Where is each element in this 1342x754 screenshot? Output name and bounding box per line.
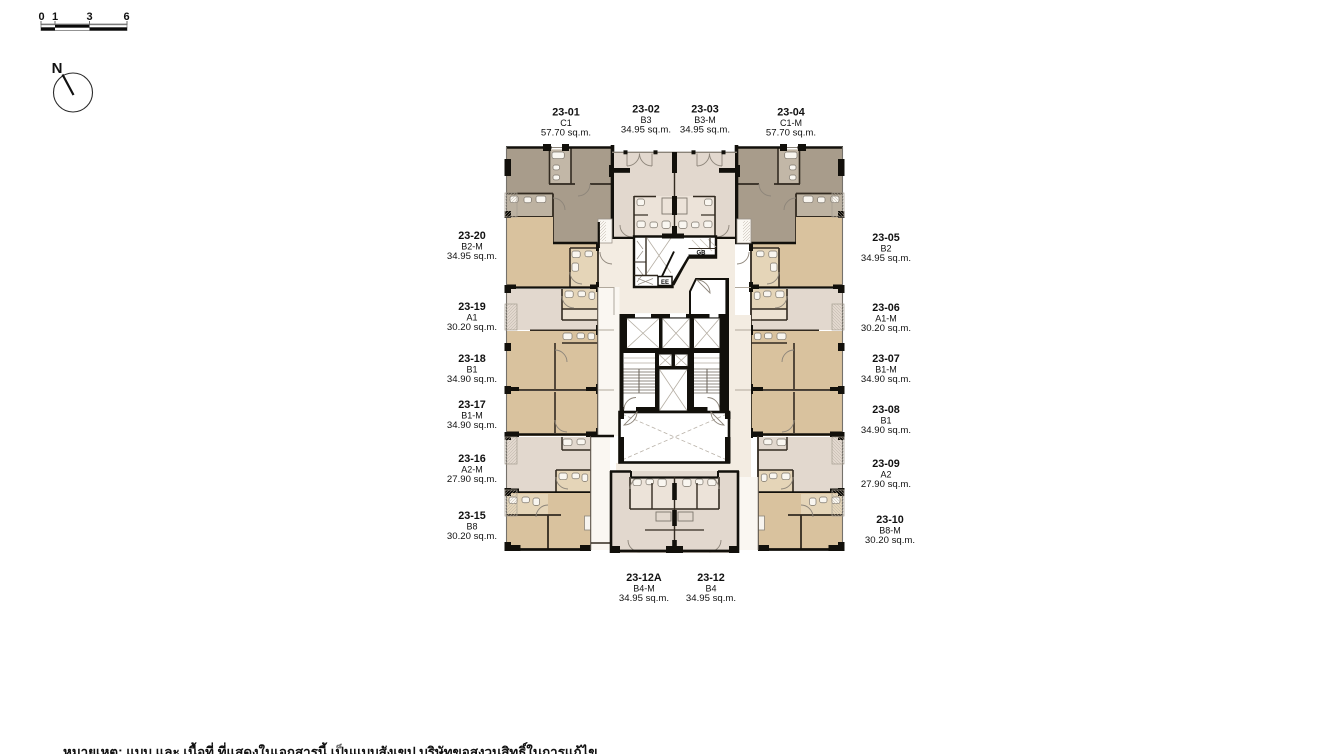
svg-text:C1-M: C1-M bbox=[780, 118, 802, 128]
svg-text:GB: GB bbox=[697, 251, 707, 257]
svg-text:27.90 sq.m.: 27.90 sq.m. bbox=[447, 474, 497, 485]
svg-text:B1-M: B1-M bbox=[875, 364, 897, 374]
svg-text:34.95 sq.m.: 34.95 sq.m. bbox=[621, 125, 671, 136]
svg-text:23-07: 23-07 bbox=[872, 353, 900, 365]
svg-text:23-10: 23-10 bbox=[876, 514, 904, 526]
svg-text:EE: EE bbox=[661, 280, 669, 286]
svg-text:34.95 sq.m.: 34.95 sq.m. bbox=[619, 593, 669, 604]
svg-text:27.90 sq.m.: 27.90 sq.m. bbox=[861, 479, 911, 490]
svg-text:B3: B3 bbox=[640, 115, 651, 125]
svg-text:23-03: 23-03 bbox=[691, 104, 719, 116]
svg-text:C1: C1 bbox=[560, 118, 572, 128]
svg-text:B8: B8 bbox=[466, 521, 477, 531]
svg-text:34.95 sq.m.: 34.95 sq.m. bbox=[447, 251, 497, 262]
svg-text:23-19: 23-19 bbox=[458, 301, 486, 313]
svg-text:A1: A1 bbox=[466, 312, 477, 322]
svg-text:23-12A: 23-12A bbox=[626, 572, 662, 584]
svg-text:57.70 sq.m.: 57.70 sq.m. bbox=[766, 128, 816, 139]
svg-text:30.20 sq.m.: 30.20 sq.m. bbox=[865, 535, 915, 546]
svg-text:B3-M: B3-M bbox=[694, 115, 716, 125]
svg-text:30.20 sq.m.: 30.20 sq.m. bbox=[447, 322, 497, 333]
svg-text:57.70 sq.m.: 57.70 sq.m. bbox=[541, 128, 591, 139]
svg-text:34.90 sq.m.: 34.90 sq.m. bbox=[861, 425, 911, 436]
svg-text:23-09: 23-09 bbox=[872, 458, 900, 470]
svg-text:23-20: 23-20 bbox=[458, 230, 486, 242]
svg-text:34.90 sq.m.: 34.90 sq.m. bbox=[447, 420, 497, 431]
svg-text:30.20 sq.m.: 30.20 sq.m. bbox=[447, 531, 497, 542]
svg-text:23-01: 23-01 bbox=[552, 107, 580, 119]
svg-text:23-12: 23-12 bbox=[697, 572, 725, 584]
svg-text:34.95 sq.m.: 34.95 sq.m. bbox=[680, 125, 730, 136]
svg-text:34.90 sq.m.: 34.90 sq.m. bbox=[447, 374, 497, 385]
svg-text:34.95 sq.m.: 34.95 sq.m. bbox=[861, 253, 911, 264]
svg-text:A2-M: A2-M bbox=[461, 464, 483, 474]
svg-text:0: 0 bbox=[38, 11, 44, 23]
svg-text:23-08: 23-08 bbox=[872, 404, 900, 416]
svg-text:B1-M: B1-M bbox=[461, 410, 483, 420]
svg-text:23-17: 23-17 bbox=[458, 399, 486, 411]
svg-text:6: 6 bbox=[123, 11, 129, 23]
svg-text:34.90 sq.m.: 34.90 sq.m. bbox=[861, 374, 911, 385]
svg-text:23-18: 23-18 bbox=[458, 353, 486, 365]
svg-text:23-15: 23-15 bbox=[458, 510, 486, 522]
svg-text:34.95 sq.m.: 34.95 sq.m. bbox=[686, 593, 736, 604]
svg-text:23-16: 23-16 bbox=[458, 453, 486, 465]
svg-text:N: N bbox=[52, 60, 63, 77]
svg-text:23-04: 23-04 bbox=[777, 107, 805, 119]
svg-text:B4: B4 bbox=[705, 583, 716, 593]
svg-text:B1: B1 bbox=[466, 364, 477, 374]
svg-text:B2: B2 bbox=[880, 243, 891, 253]
svg-text:B1: B1 bbox=[880, 415, 891, 425]
svg-text:23-02: 23-02 bbox=[632, 104, 660, 116]
svg-text:23-06: 23-06 bbox=[872, 302, 900, 314]
svg-text:A1-M: A1-M bbox=[875, 313, 897, 323]
svg-text:B8-M: B8-M bbox=[879, 525, 901, 535]
svg-text:23-05: 23-05 bbox=[872, 232, 900, 244]
svg-text:B2-M: B2-M bbox=[461, 241, 483, 251]
svg-text:A2: A2 bbox=[880, 469, 891, 479]
svg-text:30.20 sq.m.: 30.20 sq.m. bbox=[861, 323, 911, 334]
svg-text:B4-M: B4-M bbox=[633, 583, 655, 593]
